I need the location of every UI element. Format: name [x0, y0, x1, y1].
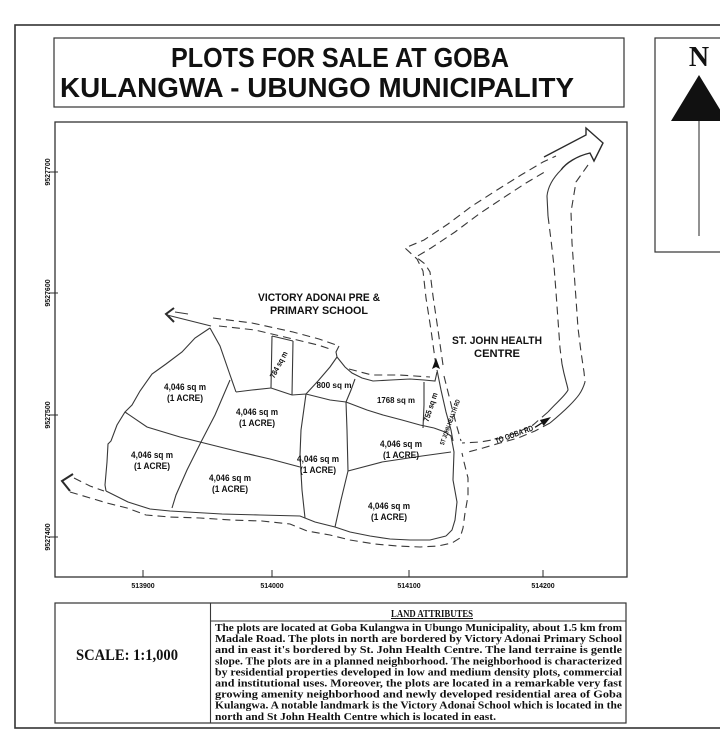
svg-text:VICTORY ADONAI PRE &: VICTORY ADONAI PRE &: [258, 292, 380, 304]
svg-text:4,046 sq m: 4,046 sq m: [164, 382, 206, 392]
svg-text:growing amenity neighborhood a: growing amenity neighborhood and newly d…: [215, 690, 622, 701]
svg-text:SCALE: 1:1,000: SCALE: 1:1,000: [76, 647, 178, 664]
svg-text:(1 ACRE): (1 ACRE): [239, 418, 275, 428]
svg-text:514000: 514000: [260, 583, 283, 590]
svg-text:north and St John Health Centr: north and St John Health Centre which is…: [215, 712, 497, 723]
svg-text:Kulangwa. A notable landmark i: Kulangwa. A notable landmark is the Vict…: [215, 701, 623, 712]
svg-text:The plots are located at Goba: The plots are located at Goba Kulangwa i…: [215, 623, 623, 634]
svg-text:by residential properties deve: by residential properties developed in l…: [215, 667, 622, 678]
svg-text:513900: 513900: [131, 583, 154, 590]
svg-text:4,046 sq m: 4,046 sq m: [236, 407, 278, 417]
svg-text:9527400: 9527400: [45, 523, 52, 550]
svg-text:KULANGWA - UBUNGO MUNICIPALITY: KULANGWA - UBUNGO MUNICIPALITY: [60, 72, 574, 103]
svg-text:9527500: 9527500: [45, 401, 52, 428]
svg-text:4,046 sq m: 4,046 sq m: [209, 473, 251, 483]
svg-text:slope. The plots are in a plan: slope. The plots are in a planned neighb…: [215, 656, 623, 667]
svg-text:4,046 sq m: 4,046 sq m: [297, 454, 339, 464]
svg-text:and in east it's bordered by S: and in east it's bordered by St. John He…: [215, 645, 623, 656]
svg-text:800 sq m: 800 sq m: [317, 380, 352, 390]
svg-text:4,046 sq m: 4,046 sq m: [131, 450, 173, 460]
svg-text:PRIMARY SCHOOL: PRIMARY SCHOOL: [270, 305, 368, 317]
svg-text:CENTRE: CENTRE: [474, 348, 520, 360]
svg-text:LAND ATTRIBUTES: LAND ATTRIBUTES: [391, 609, 473, 620]
svg-text:4,046 sq m: 4,046 sq m: [380, 439, 422, 449]
svg-text:(1 ACRE): (1 ACRE): [371, 512, 407, 522]
svg-text:PLOTS FOR SALE AT GOBA: PLOTS FOR SALE AT GOBA: [171, 42, 509, 73]
svg-text:514100: 514100: [397, 583, 420, 590]
svg-text:(1 ACRE): (1 ACRE): [212, 484, 248, 494]
svg-text:9527700: 9527700: [45, 158, 52, 185]
svg-text:(1 ACRE): (1 ACRE): [167, 393, 203, 403]
svg-text:and institutional uses. Moreov: and institutional uses. Moreover, the pl…: [215, 679, 623, 690]
svg-text:(1 ACRE): (1 ACRE): [300, 465, 336, 475]
svg-text:1768 sq m: 1768 sq m: [377, 395, 415, 405]
svg-text:514200: 514200: [531, 583, 554, 590]
svg-text:N: N: [689, 42, 709, 73]
svg-text:(1 ACRE): (1 ACRE): [383, 450, 419, 460]
svg-text:ST. JOHN HEALTH: ST. JOHN HEALTH: [452, 335, 542, 347]
svg-text:(1 ACRE): (1 ACRE): [134, 461, 170, 471]
svg-text:4,046 sq m: 4,046 sq m: [368, 501, 410, 511]
svg-text:9527600: 9527600: [45, 279, 52, 306]
svg-text:Madale Road. The plots in nort: Madale Road. The plots in north are bord…: [215, 634, 622, 645]
